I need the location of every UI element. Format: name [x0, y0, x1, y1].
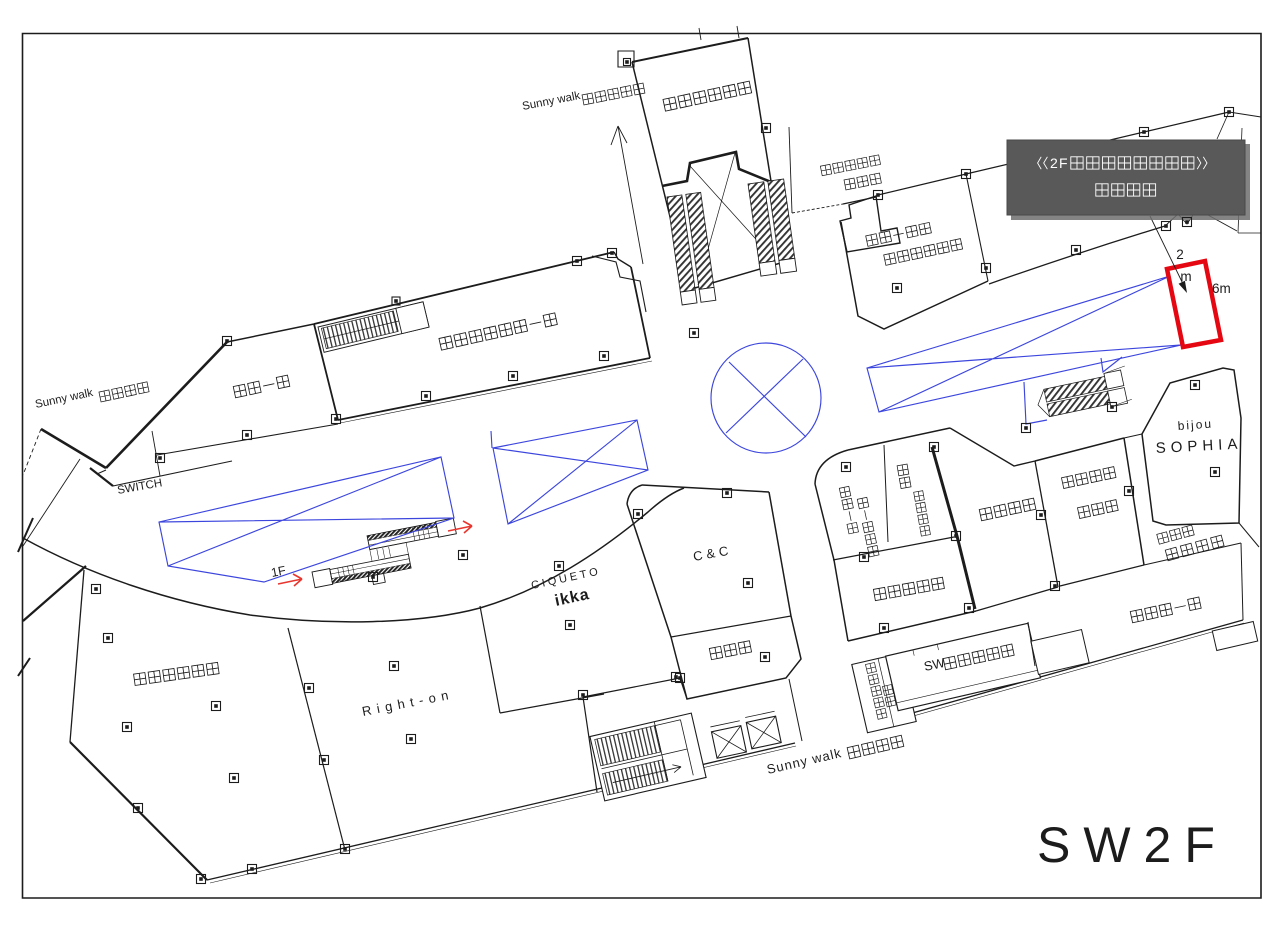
svg-text:m: m	[1180, 269, 1191, 284]
svg-text:SW2F: SW2F	[1037, 817, 1228, 873]
svg-text:2: 2	[1176, 247, 1184, 262]
svg-text:1F: 1F	[270, 563, 287, 580]
svg-text:bijou: bijou	[1177, 417, 1213, 433]
svg-text:6m: 6m	[1212, 281, 1231, 296]
svg-text:2: 2	[1050, 155, 1058, 171]
svg-text:F: F	[1059, 155, 1068, 171]
